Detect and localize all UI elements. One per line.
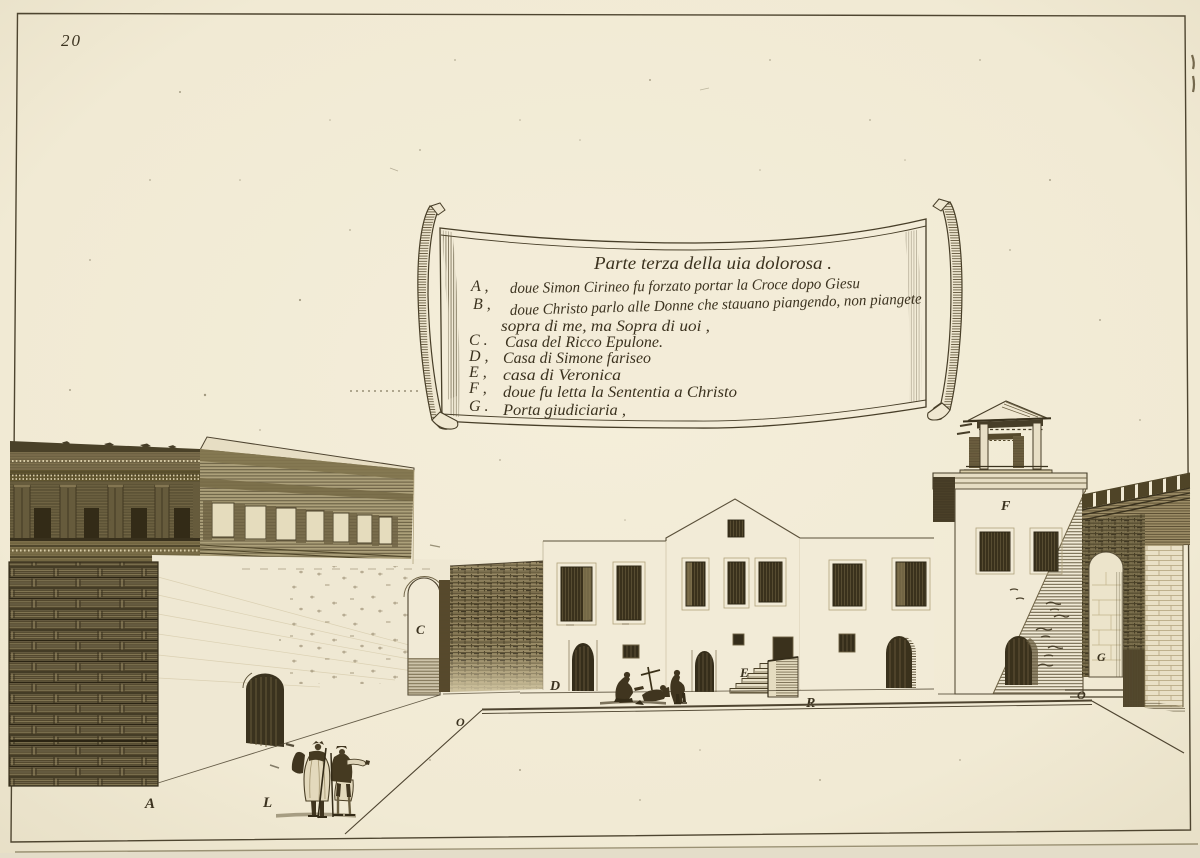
svg-text:O: O [456,715,465,729]
svg-text:20: 20 [61,31,82,50]
svg-text:F: F [1000,499,1011,514]
svg-text:E ,: E , [468,364,487,381]
svg-text:A: A [144,796,155,812]
svg-text:D: D [549,679,560,694]
svg-text:Casa del Ricco Epulone.: Casa del Ricco Epulone. [505,334,663,351]
svg-text:sopra di me, ma Sopra di uoi ,: sopra di me, ma Sopra di uoi , [501,318,710,335]
svg-text:E: E [739,665,749,680]
svg-text:G: G [1097,650,1106,664]
svg-text:casa di Veronica: casa di Veronica [503,367,621,384]
svg-text:D ,: D , [468,348,489,365]
svg-text:C: C [416,622,425,637]
svg-text:doue fu letta la Sententia a C: doue fu letta la Sententia a Christo [503,384,737,401]
svg-text:Casa di Simone fariseo: Casa di Simone fariseo [503,350,651,367]
svg-text:F ,: F , [468,380,487,397]
svg-text:A ,: A , [470,278,488,295]
svg-text:C .: C . [469,332,488,349]
svg-text:Parte terza della uia dolorosa: Parte terza della uia dolorosa . [593,253,832,273]
svg-text:B ,: B , [473,296,491,313]
svg-text:Porta giudiciaria ,: Porta giudiciaria , [502,402,626,419]
svg-text:G .: G . [469,398,489,415]
svg-text:L: L [262,795,272,811]
